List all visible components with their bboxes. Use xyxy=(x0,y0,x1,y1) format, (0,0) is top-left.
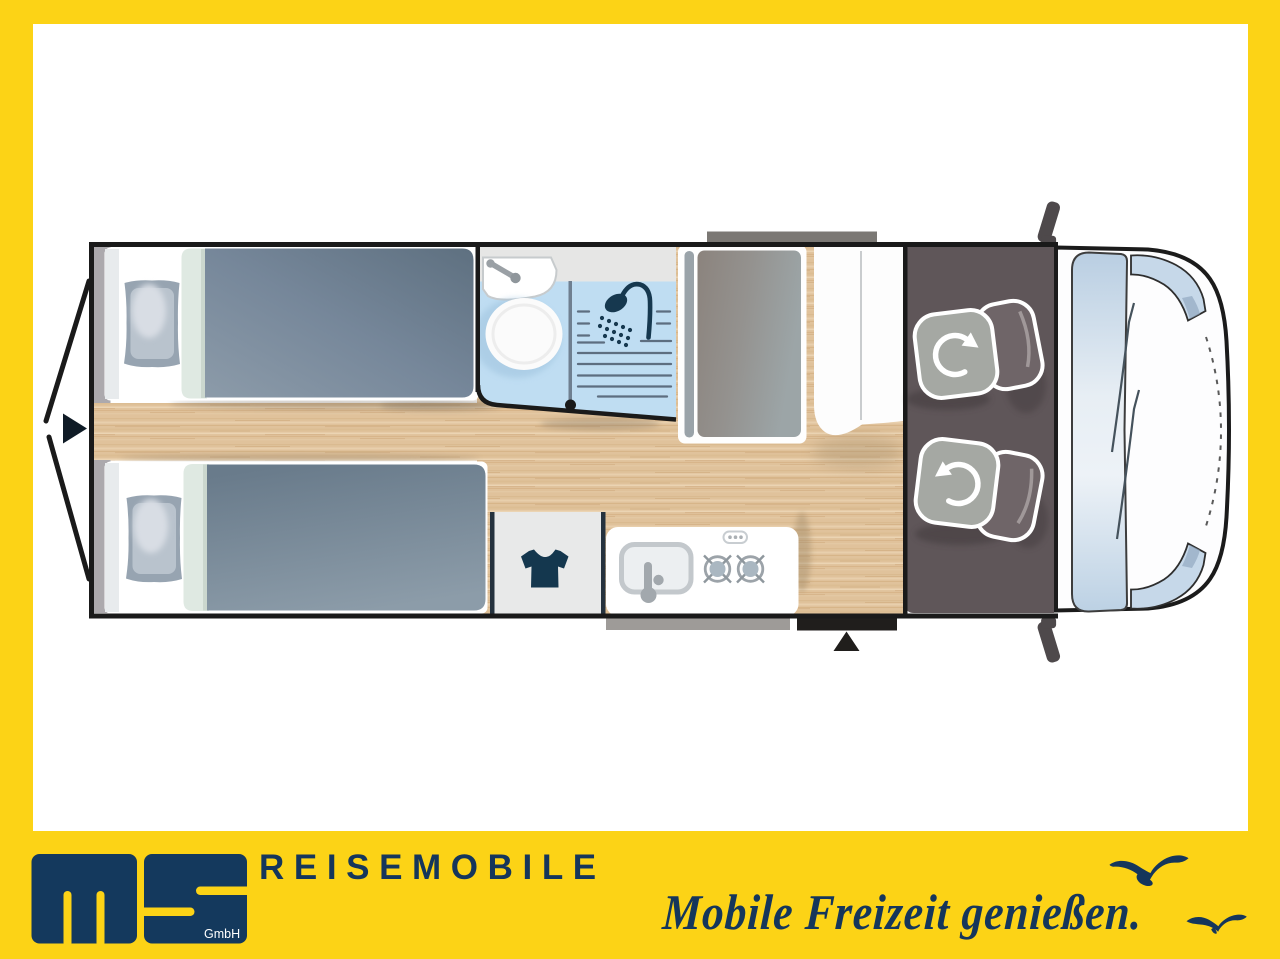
svg-text:GmbH: GmbH xyxy=(204,927,240,941)
